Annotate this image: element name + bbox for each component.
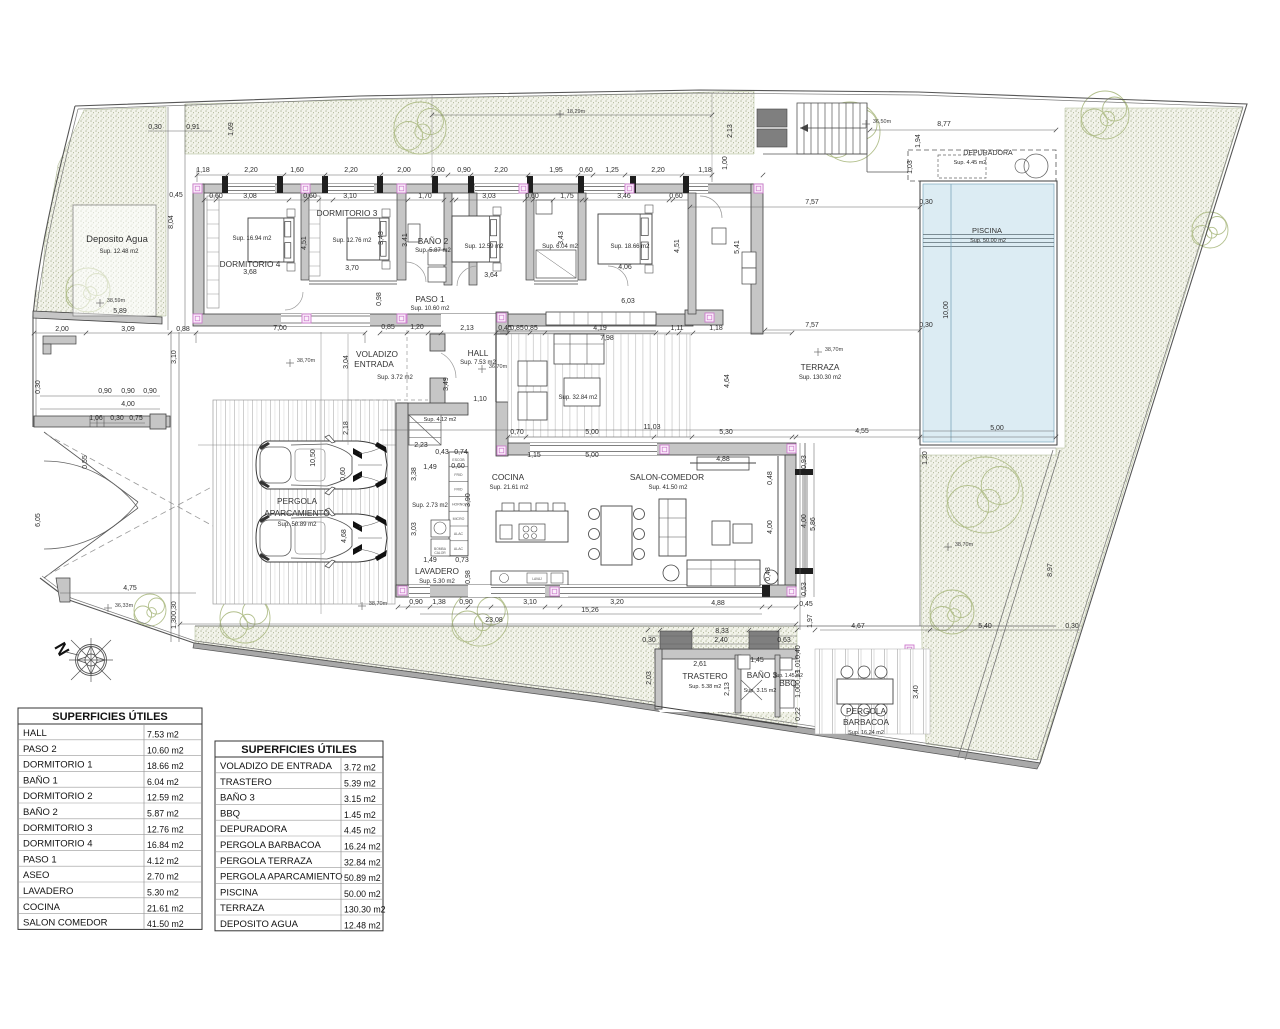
svg-text:0,90: 0,90 — [143, 388, 157, 395]
svg-text:1,00: 1,00 — [795, 684, 802, 698]
svg-text:0,60: 0,60 — [451, 463, 465, 470]
svg-text:TERRAZA: TERRAZA — [220, 903, 265, 914]
svg-text:Sup. 130.30 m2: Sup. 130.30 m2 — [799, 375, 842, 381]
svg-text:8,04: 8,04 — [168, 215, 175, 229]
svg-text:HALL: HALL — [23, 728, 47, 739]
svg-text:3,09: 3,09 — [121, 326, 135, 333]
svg-text:0,30: 0,30 — [642, 637, 656, 644]
svg-text:0,30: 0,30 — [919, 322, 933, 329]
svg-text:2,20: 2,20 — [344, 167, 358, 174]
svg-text:4,64: 4,64 — [724, 374, 731, 388]
svg-text:3,68: 3,68 — [243, 269, 257, 276]
svg-text:3,40: 3,40 — [913, 685, 920, 699]
svg-text:8,33: 8,33 — [715, 628, 729, 635]
svg-text:1,18: 1,18 — [196, 167, 210, 174]
svg-text:4,06: 4,06 — [618, 264, 632, 271]
svg-text:1,20: 1,20 — [410, 324, 424, 331]
svg-text:MICRO: MICRO — [453, 517, 465, 521]
svg-text:0,45: 0,45 — [799, 601, 813, 608]
svg-text:3,38: 3,38 — [411, 467, 418, 481]
svg-text:4,55: 4,55 — [855, 428, 869, 435]
svg-text:TERRAZA: TERRAZA — [801, 362, 840, 372]
svg-text:5,00: 5,00 — [990, 425, 1004, 432]
svg-text:PISCINA: PISCINA — [220, 887, 259, 898]
svg-text:Sup. 50.00 m2: Sup. 50.00 m2 — [970, 238, 1006, 244]
svg-text:2,13: 2,13 — [724, 682, 731, 696]
svg-text:4,00: 4,00 — [801, 514, 808, 528]
svg-text:HORNO: HORNO — [452, 502, 465, 506]
svg-text:0,30: 0,30 — [171, 601, 178, 615]
svg-text:0,22: 0,22 — [795, 707, 802, 721]
svg-text:BBQ: BBQ — [220, 808, 240, 819]
svg-text:1,03: 1,03 — [907, 160, 914, 174]
svg-text:2,03: 2,03 — [646, 671, 653, 685]
svg-text:3,46: 3,46 — [617, 193, 631, 200]
svg-text:Sup. 12.48 m2: Sup. 12.48 m2 — [99, 249, 139, 255]
svg-text:1,10: 1,10 — [473, 396, 487, 403]
svg-text:PERGOLA BARBACOA: PERGOLA BARBACOA — [220, 840, 322, 851]
svg-text:2,00: 2,00 — [397, 167, 411, 174]
svg-text:ALAC: ALAC — [454, 532, 464, 536]
svg-text:23,08: 23,08 — [485, 617, 503, 624]
svg-text:0,60: 0,60 — [303, 193, 317, 200]
svg-text:5,00: 5,00 — [585, 452, 599, 459]
svg-text:2,40: 2,40 — [714, 637, 728, 644]
svg-text:2,18: 2,18 — [343, 421, 350, 435]
svg-text:6,03: 6,03 — [621, 298, 635, 305]
svg-text:38,70m: 38,70m — [955, 542, 974, 548]
svg-text:16.24 m2: 16.24 m2 — [344, 842, 381, 852]
svg-text:1,25: 1,25 — [605, 167, 619, 174]
svg-text:ALAC: ALAC — [454, 547, 464, 551]
svg-text:1,18: 1,18 — [709, 325, 723, 332]
svg-text:0,43: 0,43 — [435, 449, 449, 456]
svg-text:2,61: 2,61 — [693, 661, 707, 668]
svg-text:LAVADERO: LAVADERO — [415, 566, 460, 576]
svg-text:4,51: 4,51 — [301, 236, 308, 250]
svg-text:3.15 m2: 3.15 m2 — [344, 794, 376, 804]
svg-text:12.76 m2: 12.76 m2 — [147, 824, 184, 834]
svg-text:SALON-COMEDOR: SALON-COMEDOR — [630, 472, 704, 482]
svg-text:1,06: 1,06 — [89, 415, 103, 422]
svg-text:Sup. 16.24 m2: Sup. 16.24 m2 — [848, 730, 884, 736]
svg-text:1,49: 1,49 — [423, 557, 437, 564]
svg-text:5.87 m2: 5.87 m2 — [147, 809, 179, 819]
svg-text:2,20: 2,20 — [244, 167, 258, 174]
svg-text:2,13: 2,13 — [727, 124, 734, 138]
svg-text:5,00: 5,00 — [585, 429, 599, 436]
svg-text:Sup. 41.50 m2: Sup. 41.50 m2 — [648, 485, 688, 491]
svg-text:SUPERFICIES ÚTILES: SUPERFICIES ÚTILES — [52, 710, 168, 723]
svg-text:38,70m: 38,70m — [369, 601, 388, 607]
svg-text:0,85: 0,85 — [510, 325, 524, 332]
svg-text:ASEO: ASEO — [23, 870, 49, 881]
svg-text:4,51: 4,51 — [674, 239, 681, 253]
svg-text:36,50m: 36,50m — [873, 119, 892, 125]
svg-text:0,30: 0,30 — [110, 415, 124, 422]
svg-text:Sup. 32.84 m2: Sup. 32.84 m2 — [558, 395, 598, 401]
svg-text:1.45 m2: 1.45 m2 — [344, 810, 376, 820]
svg-text:4,68: 4,68 — [341, 529, 348, 543]
svg-text:Sup. 3.15 m2: Sup. 3.15 m2 — [744, 688, 777, 694]
svg-text:7.53 m2: 7.53 m2 — [147, 730, 179, 740]
svg-text:1,49: 1,49 — [423, 464, 437, 471]
svg-text:0,93: 0,93 — [801, 455, 808, 469]
svg-text:Sup. 21.61 m2: Sup. 21.61 m2 — [489, 485, 529, 491]
svg-text:38,59m: 38,59m — [107, 298, 126, 304]
svg-text:DEPURADORA: DEPURADORA — [963, 150, 1013, 157]
svg-text:0,48: 0,48 — [765, 567, 772, 581]
svg-text:0,30: 0,30 — [148, 124, 162, 131]
svg-text:16.84 m2: 16.84 m2 — [147, 840, 184, 850]
svg-text:Sup. 4.45 m2: Sup. 4.45 m2 — [954, 160, 987, 166]
svg-text:18.66 m2: 18.66 m2 — [147, 761, 184, 771]
svg-text:3,10: 3,10 — [343, 193, 357, 200]
svg-text:SALON COMEDOR: SALON COMEDOR — [23, 918, 108, 929]
svg-text:DORMITORIO 2: DORMITORIO 2 — [23, 791, 93, 802]
svg-text:0,98: 0,98 — [376, 292, 383, 306]
svg-text:Sup. 16.94 m2: Sup. 16.94 m2 — [232, 236, 272, 242]
svg-text:0,30: 0,30 — [35, 380, 42, 394]
svg-text:1,95: 1,95 — [549, 167, 563, 174]
svg-text:130.30 m2: 130.30 m2 — [344, 905, 386, 915]
svg-text:1,70: 1,70 — [418, 193, 432, 200]
svg-text:Sup. 4.12 m2: Sup. 4.12 m2 — [424, 417, 457, 423]
svg-text:4,19: 4,19 — [593, 325, 607, 332]
svg-text:COCINA: COCINA — [492, 472, 525, 482]
svg-text:BAÑO 3: BAÑO 3 — [220, 793, 255, 804]
svg-text:0,60: 0,60 — [669, 193, 683, 200]
svg-text:Sup. 5.30 m2: Sup. 5.30 m2 — [419, 579, 455, 585]
svg-text:1,69: 1,69 — [228, 122, 235, 136]
svg-text:3,90: 3,90 — [465, 493, 472, 507]
svg-text:3,49: 3,49 — [443, 377, 450, 391]
svg-text:36,70m: 36,70m — [489, 364, 508, 370]
svg-text:5,30: 5,30 — [719, 429, 733, 436]
svg-text:BAÑO 2: BAÑO 2 — [23, 807, 58, 818]
svg-text:PASO 2: PASO 2 — [23, 744, 57, 755]
svg-text:DORMITORIO 4: DORMITORIO 4 — [220, 259, 281, 269]
svg-text:1,15: 1,15 — [527, 452, 541, 459]
svg-text:2,20: 2,20 — [651, 167, 665, 174]
svg-text:0,40: 0,40 — [795, 645, 802, 659]
svg-text:3,43: 3,43 — [558, 231, 565, 245]
svg-text:4,00: 4,00 — [767, 520, 774, 534]
svg-text:1,11: 1,11 — [670, 325, 683, 332]
svg-text:4,67: 4,67 — [851, 623, 865, 630]
svg-text:5,40: 5,40 — [978, 623, 992, 630]
svg-text:3.72 m2: 3.72 m2 — [344, 763, 376, 773]
svg-text:10,50: 10,50 — [310, 449, 317, 467]
svg-text:10.60 m2: 10.60 m2 — [147, 745, 184, 755]
svg-text:0,88: 0,88 — [176, 326, 190, 333]
svg-text:COCINA: COCINA — [23, 902, 61, 913]
svg-text:12.48 m2: 12.48 m2 — [344, 921, 381, 931]
svg-text:4,75: 4,75 — [123, 585, 137, 592]
svg-text:LAVAJ: LAVAJ — [532, 577, 542, 581]
svg-text:Sup. 50.89 m2: Sup. 50.89 m2 — [277, 522, 317, 528]
svg-text:0,45: 0,45 — [169, 192, 183, 199]
svg-text:DEPOSITO AGUA: DEPOSITO AGUA — [220, 919, 299, 930]
svg-text:3,43: 3,43 — [378, 231, 385, 245]
svg-text:3,41: 3,41 — [402, 233, 409, 247]
svg-text:DORMITORIO 1: DORMITORIO 1 — [23, 760, 93, 771]
svg-text:1,45: 1,45 — [750, 657, 764, 664]
svg-text:5.30 m2: 5.30 m2 — [147, 888, 179, 898]
svg-text:FRID: FRID — [454, 473, 463, 477]
svg-text:0,74: 0,74 — [454, 449, 468, 456]
svg-text:4,88: 4,88 — [711, 600, 725, 607]
svg-text:DEPURADORA: DEPURADORA — [220, 824, 288, 835]
svg-text:PERGOLA TERRAZA: PERGOLA TERRAZA — [220, 856, 313, 867]
svg-text:0,60: 0,60 — [431, 167, 445, 174]
svg-text:3,10: 3,10 — [523, 599, 537, 606]
svg-text:7,98: 7,98 — [600, 335, 614, 342]
svg-text:21.61 m2: 21.61 m2 — [147, 903, 184, 913]
svg-text:2.70 m2: 2.70 m2 — [147, 872, 179, 882]
svg-text:0,60: 0,60 — [340, 467, 347, 481]
svg-text:1,00: 1,00 — [722, 156, 729, 170]
svg-text:Deposito Agua: Deposito Agua — [86, 234, 149, 245]
svg-text:7,00: 7,00 — [273, 325, 287, 332]
svg-text:0,53: 0,53 — [801, 582, 808, 596]
svg-text:APARCAMIENTO: APARCAMIENTO — [264, 508, 330, 518]
svg-text:3,08: 3,08 — [243, 193, 257, 200]
svg-text:6,05: 6,05 — [35, 513, 42, 527]
svg-text:BARBACOA: BARBACOA — [843, 717, 890, 727]
svg-text:15,26: 15,26 — [581, 607, 599, 614]
svg-text:6.04 m2: 6.04 m2 — [147, 777, 179, 787]
svg-text:0,90: 0,90 — [459, 599, 473, 606]
svg-text:PISCINA: PISCINA — [972, 226, 1002, 235]
svg-text:5,41: 5,41 — [734, 240, 741, 254]
svg-text:3,04: 3,04 — [343, 355, 350, 369]
svg-text:1,20: 1,20 — [922, 451, 929, 465]
svg-text:BAÑO 1: BAÑO 1 — [23, 775, 58, 786]
svg-text:5.39 m2: 5.39 m2 — [344, 778, 376, 788]
svg-text:0,98: 0,98 — [465, 570, 472, 584]
svg-text:7,57: 7,57 — [805, 199, 819, 206]
svg-text:CALOR: CALOR — [434, 551, 446, 555]
svg-text:0,85: 0,85 — [381, 324, 395, 331]
svg-text:LAVADERO: LAVADERO — [23, 886, 73, 897]
svg-text:PERGOLA: PERGOLA — [846, 706, 887, 716]
svg-text:0,63: 0,63 — [777, 637, 791, 644]
svg-text:3,10: 3,10 — [171, 350, 178, 364]
svg-text:0,90: 0,90 — [457, 167, 471, 174]
svg-text:Sup. 12.59 m2: Sup. 12.59 m2 — [464, 244, 504, 250]
svg-text:0,13: 0,13 — [795, 670, 802, 684]
svg-text:36,33m: 36,33m — [115, 603, 134, 609]
svg-text:ENTRADA: ENTRADA — [354, 359, 394, 369]
svg-text:DORMITORIO 3: DORMITORIO 3 — [23, 823, 93, 834]
svg-text:0,60: 0,60 — [525, 193, 539, 200]
svg-text:10,00: 10,00 — [943, 301, 950, 319]
svg-text:8,77: 8,77 — [937, 121, 951, 128]
svg-text:1,75: 1,75 — [560, 193, 574, 200]
svg-text:PERGOLA: PERGOLA — [277, 496, 318, 506]
svg-text:50.00 m2: 50.00 m2 — [344, 889, 381, 899]
svg-text:TRASTERO: TRASTERO — [682, 671, 728, 681]
svg-text:0,90: 0,90 — [409, 599, 423, 606]
svg-text:2,20: 2,20 — [494, 167, 508, 174]
svg-text:4.45 m2: 4.45 m2 — [344, 826, 376, 836]
svg-text:Sup. 2.73 m2: Sup. 2.73 m2 — [412, 503, 448, 509]
svg-text:VOLADIZO: VOLADIZO — [356, 349, 399, 359]
svg-text:0,75: 0,75 — [129, 415, 143, 422]
svg-text:2,13: 2,13 — [460, 325, 474, 332]
svg-text:2,00: 2,00 — [55, 326, 69, 333]
svg-text:PASO 1: PASO 1 — [415, 294, 445, 304]
svg-text:0,90: 0,90 — [121, 388, 135, 395]
svg-text:DORMITORIO 4: DORMITORIO 4 — [23, 839, 93, 850]
svg-text:ESCOB: ESCOB — [452, 458, 465, 462]
svg-text:50.89 m2: 50.89 m2 — [344, 873, 381, 883]
svg-text:5,89: 5,89 — [113, 308, 127, 315]
svg-text:Sup. 12.76 m2: Sup. 12.76 m2 — [332, 238, 372, 244]
svg-text:PASO 1: PASO 1 — [23, 854, 57, 865]
svg-text:VOLADIZO DE ENTRADA: VOLADIZO DE ENTRADA — [220, 761, 333, 772]
svg-text:8,97: 8,97 — [1047, 563, 1054, 577]
svg-text:0,85: 0,85 — [524, 325, 538, 332]
svg-text:41.50 m2: 41.50 m2 — [147, 919, 184, 929]
svg-text:11,03: 11,03 — [644, 424, 661, 431]
svg-text:HALL: HALL — [468, 348, 489, 358]
svg-text:Sup. 5.38 m2: Sup. 5.38 m2 — [689, 684, 722, 690]
svg-text:TRASTERO: TRASTERO — [220, 777, 272, 788]
svg-text:3,03: 3,03 — [411, 522, 418, 536]
svg-text:1,97: 1,97 — [807, 614, 814, 628]
svg-text:4,00: 4,00 — [121, 401, 135, 408]
svg-text:4,88: 4,88 — [716, 456, 730, 463]
svg-text:Sup. 5.87 m2: Sup. 5.87 m2 — [415, 248, 451, 254]
svg-text:BAÑO 2: BAÑO 2 — [418, 236, 449, 246]
svg-text:0,73: 0,73 — [455, 557, 469, 564]
svg-text:32.84 m2: 32.84 m2 — [344, 857, 381, 867]
svg-text:1,38: 1,38 — [432, 599, 446, 606]
svg-text:7,57: 7,57 — [805, 322, 819, 329]
svg-text:PERGOLA APARCAMIENTO: PERGOLA APARCAMIENTO — [220, 872, 343, 883]
svg-text:4.12 m2: 4.12 m2 — [147, 856, 179, 866]
svg-text:DORMITORIO 3: DORMITORIO 3 — [317, 208, 378, 218]
svg-text:0,70: 0,70 — [510, 429, 524, 436]
svg-text:Sup. 10.60 m2: Sup. 10.60 m2 — [410, 306, 450, 312]
svg-text:0,60: 0,60 — [579, 167, 593, 174]
svg-text:38,70m: 38,70m — [825, 347, 844, 353]
svg-text:Sup. 3.72 m2: Sup. 3.72 m2 — [377, 375, 413, 381]
svg-text:5,86: 5,86 — [810, 517, 817, 531]
svg-text:0,48: 0,48 — [767, 471, 774, 485]
svg-text:1,18: 1,18 — [698, 167, 712, 174]
svg-text:Sup. 18.66 m2: Sup. 18.66 m2 — [610, 244, 650, 250]
svg-text:0,55: 0,55 — [82, 455, 89, 469]
svg-text:0,91: 0,91 — [186, 124, 200, 131]
svg-text:12.59 m2: 12.59 m2 — [147, 793, 184, 803]
svg-text:3,03: 3,03 — [482, 193, 496, 200]
svg-text:FRID: FRID — [454, 488, 463, 492]
svg-text:0,30: 0,30 — [1065, 623, 1079, 630]
svg-text:SUPERFICIES ÚTILES: SUPERFICIES ÚTILES — [241, 743, 357, 756]
svg-text:0,90: 0,90 — [98, 388, 112, 395]
svg-text:3,70: 3,70 — [345, 265, 359, 272]
svg-text:3,64: 3,64 — [484, 272, 498, 279]
svg-text:1,30: 1,30 — [171, 615, 178, 629]
svg-text:18,29m: 18,29m — [567, 109, 586, 115]
svg-text:38,70m: 38,70m — [297, 358, 316, 364]
svg-text:1,60: 1,60 — [290, 167, 304, 174]
svg-text:0,60: 0,60 — [209, 193, 223, 200]
svg-text:0,30: 0,30 — [919, 199, 933, 206]
svg-text:2,23: 2,23 — [414, 442, 428, 449]
svg-text:1,94: 1,94 — [915, 134, 922, 148]
svg-text:3,20: 3,20 — [610, 599, 624, 606]
